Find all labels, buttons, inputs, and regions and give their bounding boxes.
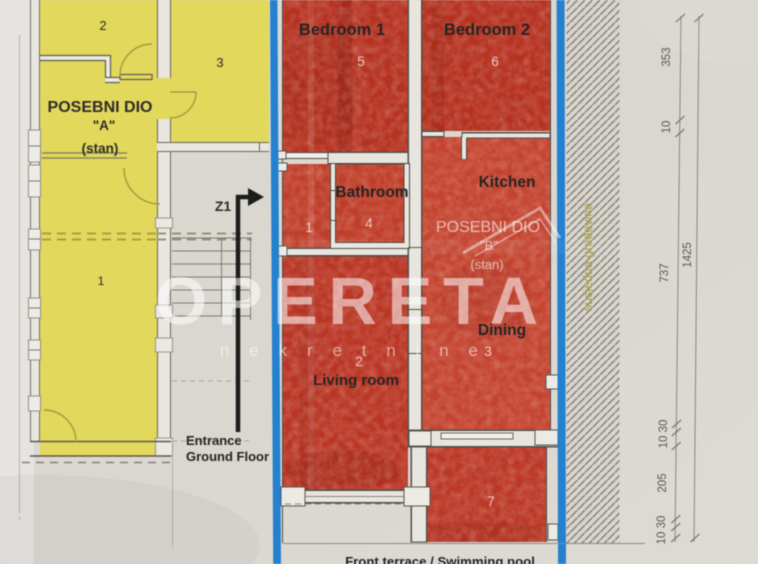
svg-text:"A": "A": [93, 118, 116, 133]
svg-text:Ground Floor: Ground Floor: [186, 449, 269, 464]
svg-text:susjedna građevina: susjedna građevina: [581, 203, 595, 311]
svg-text:3: 3: [216, 55, 223, 70]
svg-text:1: 1: [98, 274, 105, 288]
svg-text:4: 4: [365, 216, 373, 231]
svg-text:Bedroom 2: Bedroom 2: [444, 21, 530, 39]
svg-text:6: 6: [491, 54, 499, 69]
svg-text:737: 737: [659, 263, 671, 282]
svg-text:3: 3: [484, 344, 492, 359]
svg-text:7: 7: [487, 494, 495, 509]
svg-text:Z1: Z1: [215, 198, 232, 214]
svg-text:POSEBNI DIO: POSEBNI DIO: [48, 99, 153, 116]
svg-text:Entrance: Entrance: [186, 433, 242, 448]
svg-text:Front terrace / Swimming pool: Front terrace / Swimming pool: [345, 554, 535, 564]
svg-text:10 30: 10 30: [658, 420, 670, 449]
svg-text:10: 10: [661, 121, 673, 134]
svg-text:Living room: Living room: [313, 372, 399, 389]
svg-text:10 30: 10 30: [656, 516, 668, 545]
svg-text:1: 1: [305, 220, 313, 235]
svg-text:205: 205: [657, 473, 669, 492]
svg-text:Bathroom: Bathroom: [335, 184, 408, 201]
svg-text:2: 2: [99, 18, 106, 33]
svg-text:Bedroom 1: Bedroom 1: [299, 21, 385, 39]
svg-text:353: 353: [661, 47, 673, 66]
svg-text:Kitchen: Kitchen: [479, 174, 536, 191]
svg-text:(stan): (stan): [82, 141, 119, 156]
svg-text:5: 5: [357, 54, 365, 69]
svg-text:1425: 1425: [682, 242, 694, 268]
